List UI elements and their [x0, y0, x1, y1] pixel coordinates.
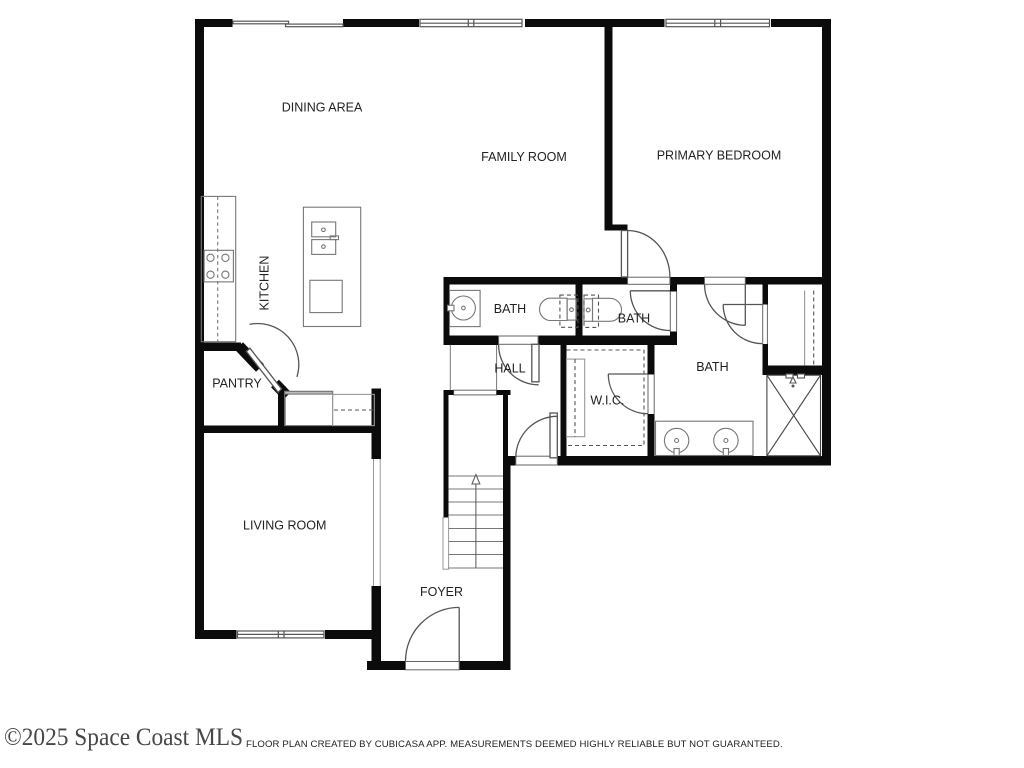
svg-text:PRIMARY BEDROOM: PRIMARY BEDROOM	[657, 149, 782, 163]
svg-text:FOYER: FOYER	[420, 585, 463, 599]
svg-text:BATH: BATH	[494, 302, 526, 316]
svg-text:HALL: HALL	[494, 362, 525, 376]
svg-text:©2025 Space Coast MLS: ©2025 Space Coast MLS	[4, 724, 243, 751]
svg-text:DINING AREA: DINING AREA	[282, 101, 363, 115]
svg-text:W.I.C.: W.I.C.	[590, 394, 624, 408]
svg-text:FAMILY ROOM: FAMILY ROOM	[481, 150, 567, 164]
svg-text:PANTRY: PANTRY	[212, 377, 262, 391]
svg-text:BATH: BATH	[618, 312, 650, 326]
svg-text:FLOOR PLAN CREATED BY CUBICASA: FLOOR PLAN CREATED BY CUBICASA APP. MEAS…	[246, 739, 783, 750]
svg-text:LIVING ROOM: LIVING ROOM	[243, 519, 326, 533]
svg-text:BATH: BATH	[696, 360, 728, 374]
svg-text:KITCHEN: KITCHEN	[258, 256, 272, 311]
